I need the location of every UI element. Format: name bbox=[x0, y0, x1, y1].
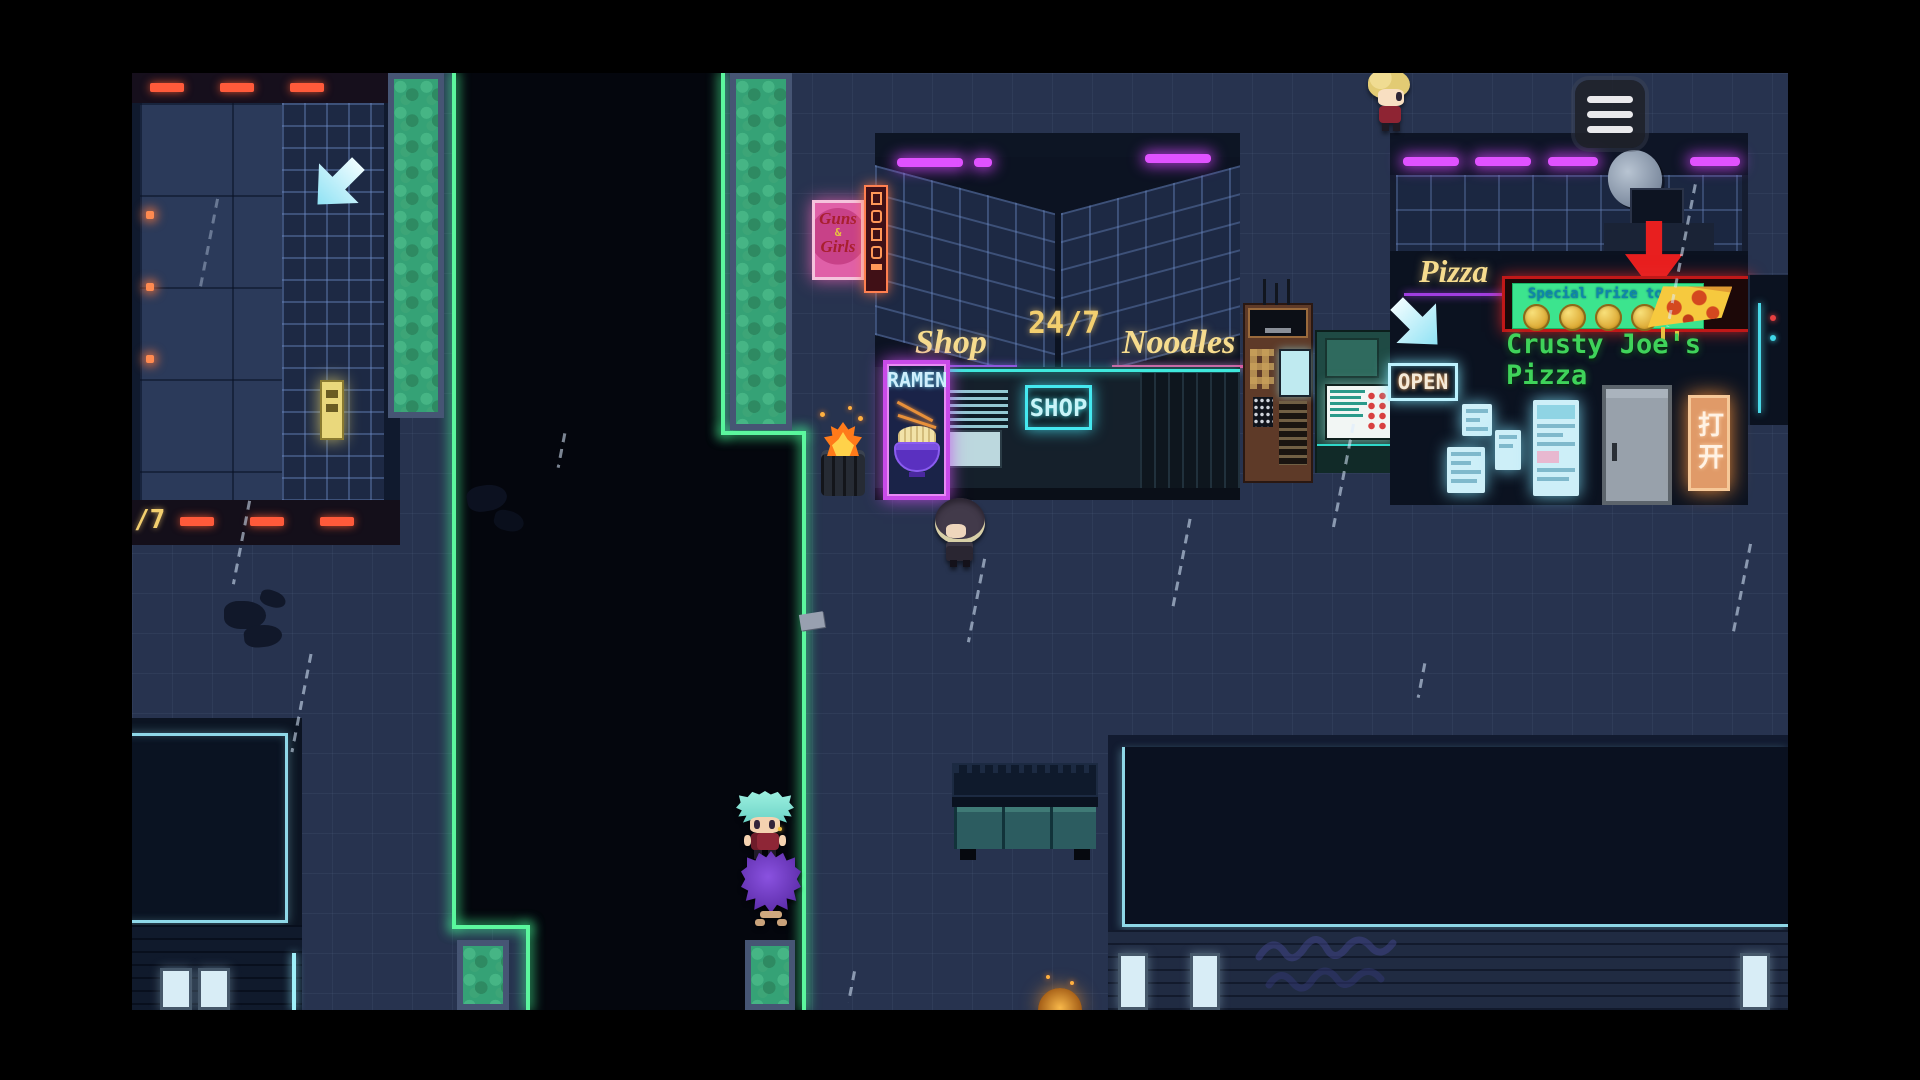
machine-menu-board[interactable] bbox=[1325, 384, 1393, 440]
machine-vent bbox=[1279, 401, 1307, 465]
npc-leg bbox=[1393, 123, 1400, 131]
creature-foot bbox=[755, 919, 765, 926]
door-side-sign-label: 打开 bbox=[1691, 411, 1728, 475]
player-arm bbox=[779, 835, 786, 846]
neon-glyph-icon bbox=[871, 192, 882, 205]
rain-streak bbox=[1417, 663, 1427, 698]
machine-button-grid bbox=[1250, 349, 1274, 389]
shop-door[interactable] bbox=[1602, 385, 1672, 505]
machine-top-screen bbox=[1325, 338, 1379, 378]
panel-light-cyan bbox=[1770, 335, 1776, 341]
dumpster-foot bbox=[1074, 849, 1090, 860]
machine-screen[interactable] bbox=[1279, 349, 1311, 397]
ramen-bowl-icon bbox=[894, 442, 940, 472]
roof-light bbox=[150, 83, 184, 92]
player-arm bbox=[744, 835, 751, 846]
ramen-banner-sign: RAMEN bbox=[883, 360, 950, 500]
npc-body bbox=[1379, 106, 1401, 123]
yellow-light-box bbox=[320, 380, 344, 440]
roof-light bbox=[220, 83, 254, 92]
special-prize-sign[interactable]: Special Prize today bbox=[1502, 276, 1752, 332]
left-building-grid-roof bbox=[282, 103, 384, 500]
awning-noodles-label: Noodles bbox=[1122, 324, 1235, 362]
dumpster-foot bbox=[960, 849, 976, 860]
shop-neon-sign: SHOP bbox=[1025, 385, 1092, 430]
neon-glyph-icon bbox=[871, 228, 882, 241]
neon-glyph-icon bbox=[871, 246, 882, 259]
corner-sign-fragment: /7 bbox=[134, 505, 165, 535]
window-blinds bbox=[948, 390, 1008, 428]
spark-icon bbox=[1070, 981, 1074, 985]
game-screen: /7 Shop 24/7 Noodles SHOP bbox=[0, 0, 1920, 1080]
npc-leg bbox=[1382, 123, 1389, 131]
graffiti-art bbox=[1253, 927, 1413, 1009]
open-sign: OPEN bbox=[1388, 363, 1458, 401]
dumpster bbox=[952, 763, 1098, 860]
pizza-awning-label: Pizza bbox=[1419, 253, 1488, 290]
glowing-manhole bbox=[1038, 988, 1082, 1010]
rain-streak bbox=[967, 558, 986, 642]
rain-streak bbox=[847, 971, 856, 1003]
neon-glyph-icon bbox=[871, 264, 882, 270]
player-eye bbox=[769, 820, 775, 829]
awning-hours-label: 24/7 bbox=[1028, 306, 1100, 341]
hamburger-menu-icon bbox=[1587, 111, 1633, 118]
bottom-right-building bbox=[1108, 735, 1788, 1010]
menu-buttons-red[interactable] bbox=[1366, 391, 1388, 431]
vertical-neon-sign bbox=[864, 185, 888, 293]
ramen-banner-label: RAMEN bbox=[887, 368, 946, 392]
awning-neon-tube bbox=[1475, 157, 1531, 166]
shop-neon-label: SHOP bbox=[1030, 394, 1088, 422]
rooftop-dark bbox=[1122, 747, 1788, 927]
player-body bbox=[751, 833, 779, 850]
companion-creature bbox=[741, 851, 801, 927]
awning-neon-tube bbox=[1403, 157, 1459, 166]
awning-neon-tube bbox=[1548, 157, 1598, 166]
lit-window bbox=[160, 968, 192, 1010]
awning-neon-tube bbox=[897, 158, 963, 167]
creature-fluff bbox=[741, 851, 801, 915]
npc-eye bbox=[1396, 92, 1402, 101]
awning-neon-tube bbox=[1145, 154, 1211, 163]
neon-glyph-icon bbox=[871, 210, 882, 223]
orange-lamp bbox=[146, 355, 154, 363]
door-handle[interactable] bbox=[1612, 443, 1617, 461]
awning-underline bbox=[1404, 293, 1516, 296]
orange-lamp bbox=[146, 283, 154, 291]
machine-top-panel bbox=[1248, 308, 1308, 338]
alley-neon-edge bbox=[452, 925, 530, 929]
menu-button[interactable] bbox=[1575, 80, 1645, 148]
machine-keypad[interactable] bbox=[1253, 397, 1273, 427]
paper-scrap bbox=[799, 611, 825, 631]
blonde-npc bbox=[1366, 73, 1414, 133]
utility-panel bbox=[1748, 275, 1788, 425]
dumpster-lid bbox=[952, 763, 1098, 797]
dumpster-hinge bbox=[952, 797, 1098, 807]
hedge-planter bbox=[730, 73, 792, 430]
hedge-planter bbox=[745, 940, 795, 1010]
open-sign-label: OPEN bbox=[1398, 370, 1449, 394]
left-building: /7 bbox=[132, 73, 400, 545]
npc-leg bbox=[950, 560, 957, 567]
rain-streak bbox=[1731, 544, 1752, 638]
player-eye bbox=[754, 820, 760, 829]
npc-body bbox=[946, 542, 973, 561]
rooftop-neon-frame bbox=[132, 733, 288, 923]
alley-neon-edge bbox=[802, 431, 806, 1010]
lit-window bbox=[1118, 953, 1148, 1010]
npc-leg bbox=[963, 560, 970, 567]
orange-lamp bbox=[146, 211, 154, 219]
panel-light-red bbox=[1770, 315, 1776, 321]
alley-neon-edge bbox=[721, 73, 725, 435]
roof-light bbox=[320, 517, 354, 526]
hooded-npc bbox=[933, 498, 987, 568]
roof-light bbox=[180, 517, 214, 526]
fire-barrel bbox=[818, 418, 868, 498]
wall-poster bbox=[1495, 430, 1521, 470]
rain-streak bbox=[1171, 519, 1191, 608]
pizza-coin-icon bbox=[1559, 304, 1586, 331]
adult-sign-line1: Guns bbox=[815, 210, 861, 227]
awning-shop-label: Shop bbox=[915, 324, 987, 362]
game-viewport: /7 Shop 24/7 Noodles SHOP bbox=[132, 73, 1788, 1010]
alley-neon-edge bbox=[721, 431, 806, 435]
hedge-planter bbox=[388, 73, 444, 418]
lit-window bbox=[1190, 953, 1220, 1010]
player-earring bbox=[778, 827, 782, 831]
npc-face bbox=[946, 524, 966, 538]
bottom-left-building bbox=[132, 718, 302, 1010]
lit-window bbox=[1740, 953, 1770, 1010]
pizza-name-sign: Crusty Joe's Pizza bbox=[1506, 329, 1788, 391]
alley-neon-edge bbox=[526, 925, 530, 1010]
pizza-shop-top-band bbox=[1390, 133, 1748, 175]
wall-poster bbox=[1447, 447, 1485, 493]
storefront-right-shutters bbox=[1140, 373, 1240, 500]
wall-poster bbox=[1533, 400, 1579, 496]
lit-window bbox=[198, 968, 230, 1010]
roof-light bbox=[250, 517, 284, 526]
antenna-icon bbox=[1275, 283, 1278, 305]
adult-bar-sign: Guns & Girls bbox=[812, 200, 864, 280]
neon-drainpipe bbox=[292, 953, 296, 1010]
door-side-sign: 打开 bbox=[1688, 395, 1730, 491]
hedge-planter bbox=[457, 940, 509, 1010]
spark-icon bbox=[1046, 975, 1050, 979]
trash-debris bbox=[243, 623, 283, 649]
dumpster-front bbox=[954, 807, 1096, 849]
creature-foot bbox=[777, 919, 787, 926]
barrel-body bbox=[821, 450, 865, 496]
pizza-coin-icon bbox=[1523, 304, 1550, 331]
spark-icon bbox=[848, 406, 852, 410]
antenna-icon bbox=[1263, 279, 1266, 305]
creature-belly bbox=[760, 911, 782, 918]
antenna-icon bbox=[1287, 279, 1290, 305]
awning-neon-tube bbox=[1690, 157, 1740, 166]
wall-poster bbox=[1462, 404, 1492, 436]
spark-icon bbox=[858, 416, 863, 421]
vending-machine-rust bbox=[1243, 303, 1313, 483]
hamburger-menu-icon bbox=[1587, 96, 1633, 103]
spark-icon bbox=[820, 412, 825, 417]
roof-light bbox=[290, 83, 324, 92]
awning-neon-tube bbox=[974, 158, 992, 167]
pizza-coin-icon bbox=[1595, 304, 1622, 331]
adult-sign-line2: Girls bbox=[815, 238, 861, 255]
panel-neon-strip bbox=[1758, 303, 1761, 413]
hamburger-menu-icon bbox=[1587, 126, 1633, 133]
alley-neon-edge bbox=[452, 73, 456, 929]
counter-panel bbox=[948, 430, 1002, 468]
bowl-foot bbox=[909, 472, 925, 477]
machine-base bbox=[1317, 444, 1401, 473]
